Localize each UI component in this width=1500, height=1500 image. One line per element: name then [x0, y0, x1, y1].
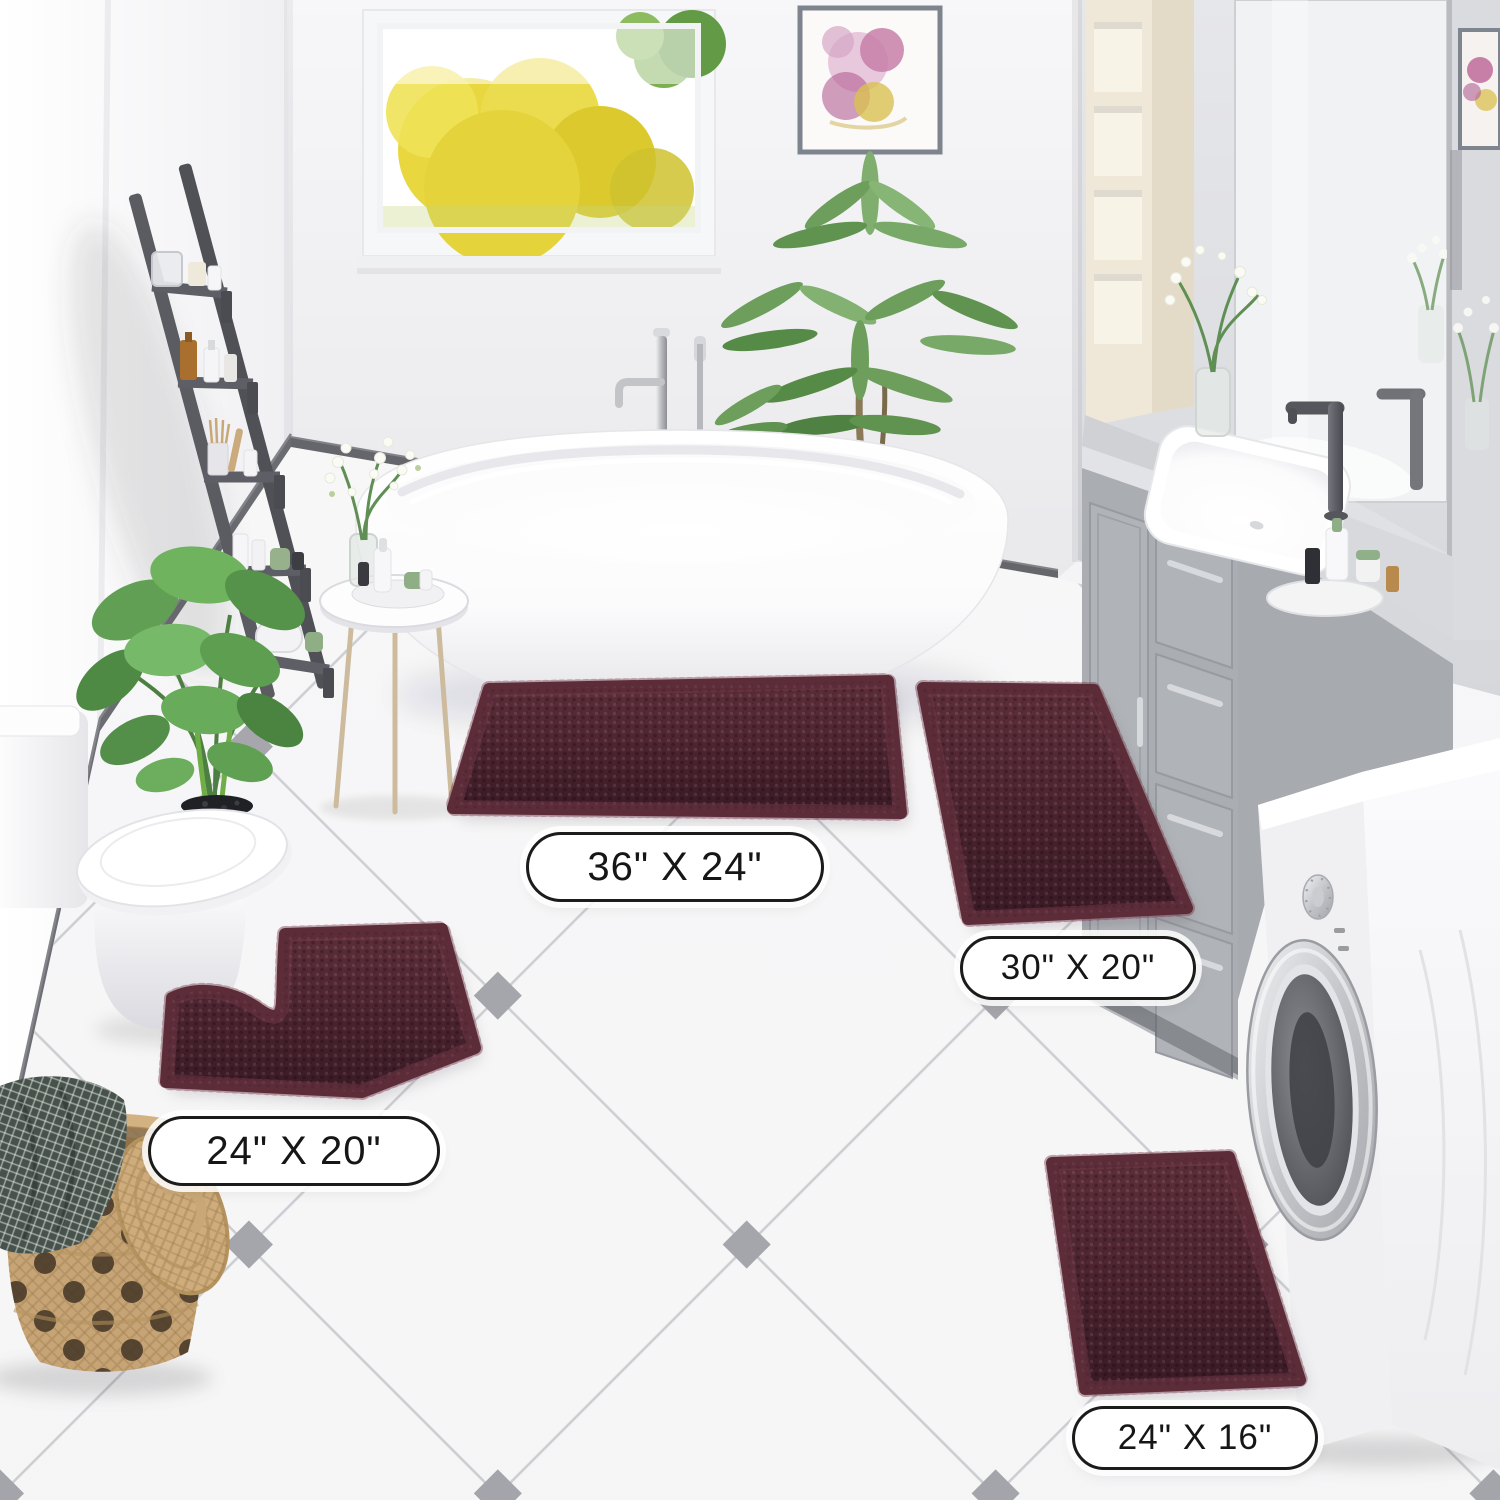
size-label-24x16-text: 24" X 16" — [1118, 1418, 1273, 1458]
size-label-24x20-text: 24" X 20" — [206, 1129, 381, 1174]
washer-button — [1334, 928, 1345, 933]
wall-corner-right — [1072, 0, 1082, 562]
scene-graphics — [0, 0, 1500, 1500]
wall-corner-left — [284, 0, 293, 442]
toilet-tank — [0, 710, 88, 908]
washer-button — [1338, 946, 1349, 951]
window-sill — [357, 256, 721, 268]
size-label-24x20: 24" X 20" — [148, 1116, 440, 1186]
size-label-30x20-text: 30" X 20" — [1001, 948, 1156, 988]
right-mirror-strip — [1447, 0, 1500, 640]
bath-mat-36x24 — [453, 681, 907, 823]
size-label-24x16: 24" X 16" — [1072, 1406, 1318, 1470]
tall-cabinet — [1086, 0, 1194, 427]
size-label-30x20: 30" X 20" — [960, 936, 1196, 1000]
bathroom-scene: 36" X 24" 30" X 20" 24" X 20" 24" X 16" — [0, 0, 1500, 1500]
washer-dial — [1303, 875, 1333, 919]
size-label-36x24: 36" X 24" — [526, 832, 824, 902]
wall-art — [800, 8, 940, 152]
window — [357, 10, 726, 274]
size-label-36x24-text: 36" X 24" — [587, 845, 762, 890]
